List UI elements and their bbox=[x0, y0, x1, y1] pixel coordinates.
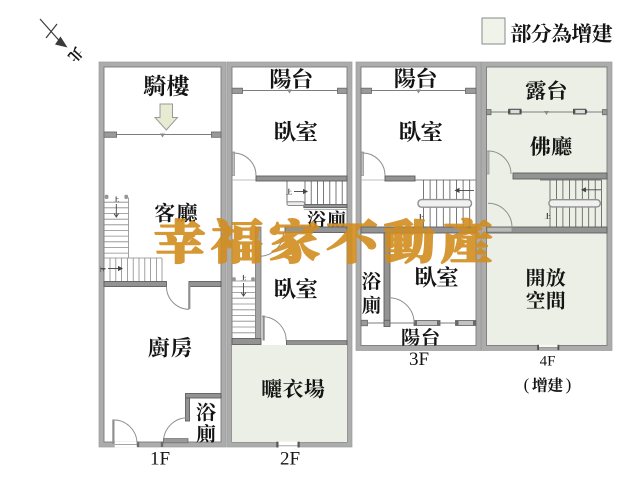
svg-text:): ) bbox=[566, 375, 572, 394]
svg-text:2F: 2F bbox=[280, 449, 300, 470]
svg-text:1F: 1F bbox=[150, 449, 170, 470]
svg-text:(: ( bbox=[524, 375, 530, 394]
svg-text:3F: 3F bbox=[409, 349, 429, 370]
svg-text:4F: 4F bbox=[540, 354, 556, 370]
